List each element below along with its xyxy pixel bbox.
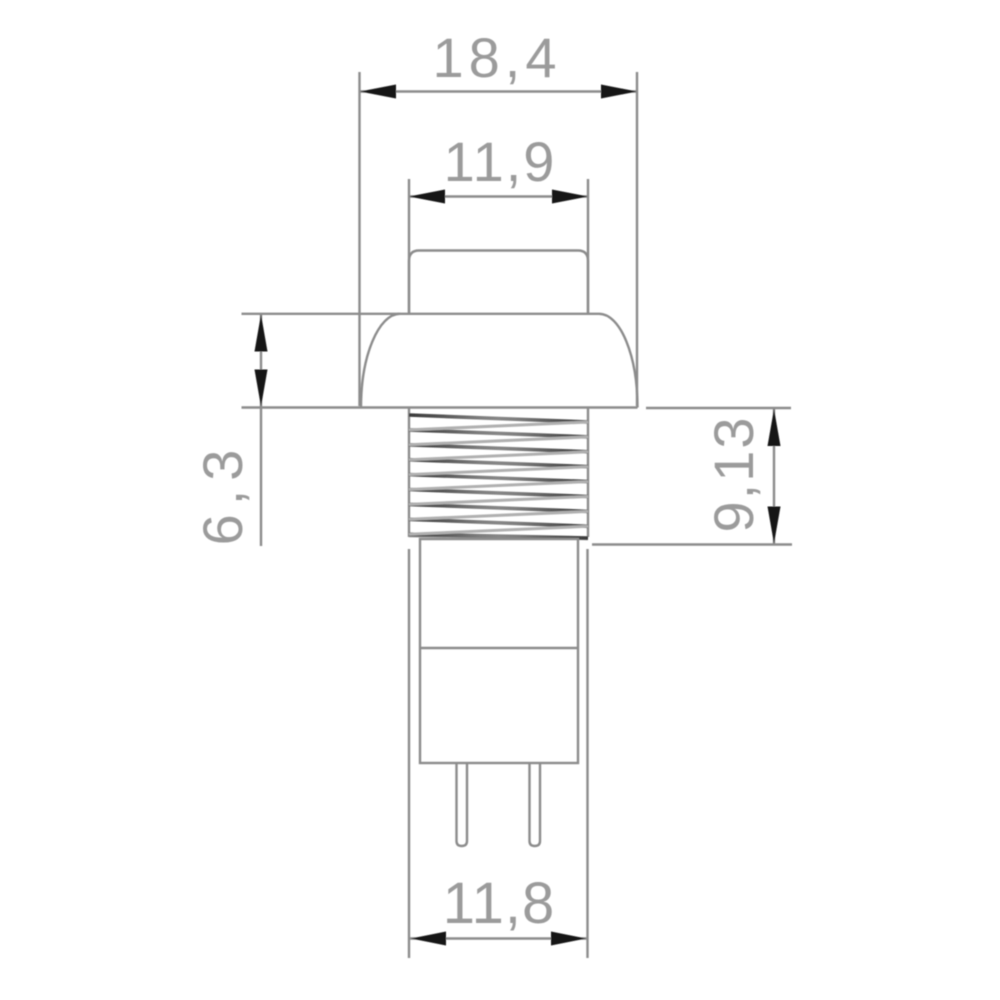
svg-text:11,9: 11,9 <box>444 130 557 193</box>
svg-text:11,8: 11,8 <box>443 871 556 936</box>
svg-text:9,13: 9,13 <box>702 416 765 533</box>
svg-text:6,3: 6,3 <box>191 441 254 546</box>
svg-text:18,4: 18,4 <box>433 26 562 89</box>
